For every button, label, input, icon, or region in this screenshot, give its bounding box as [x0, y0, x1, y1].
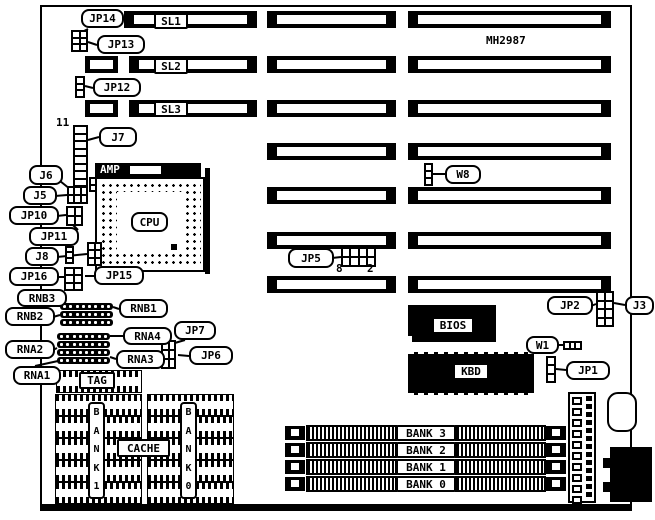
w8-block-pin [426, 179, 431, 184]
jp5-block-pin [343, 249, 349, 256]
jp5-block-pin [343, 258, 349, 265]
j8-block-pin [67, 259, 72, 262]
label-sl3: SL3 [154, 101, 188, 117]
jp1-block [546, 356, 556, 383]
jp16-block-pin [66, 276, 73, 281]
jp2-j3-block-pin [606, 293, 612, 300]
label-jp14: JP14 [81, 9, 124, 28]
jp2-j3-block-pin [606, 319, 612, 326]
label-simm-bank0: BANK 0 [396, 476, 456, 492]
label-j7: J7 [99, 127, 137, 147]
jp1-block-pin [548, 375, 554, 381]
label-sl2: SL2 [154, 58, 188, 74]
jp2-j3-block-pin [598, 319, 604, 326]
label-cpu: CPU [131, 212, 168, 232]
jp10-block [66, 206, 83, 226]
jp13-jp14-block-pin [73, 39, 79, 44]
label-cache-bank0: B A N K 0 [180, 402, 197, 499]
motherboard-diagram: AMP JP14SL1JP13SL2JP12SL3J7J6J5JP10JP11J… [0, 0, 655, 520]
label-rna3: RNA3 [116, 350, 165, 369]
label-w1: W1 [526, 336, 559, 354]
jp5-block-pin [360, 249, 366, 256]
jp1-block-pin [548, 366, 554, 372]
label-jp6: JP6 [189, 346, 233, 365]
j7-header-pin [75, 165, 86, 171]
jp10-block-pin [76, 217, 82, 224]
label-simm-bank2: BANK 2 [396, 442, 456, 458]
j8-block-pin [67, 253, 72, 256]
jp16-block [64, 267, 83, 291]
label-j6: J6 [29, 165, 63, 185]
jp16-block-pin [66, 269, 73, 274]
label-w8: W8 [445, 165, 481, 184]
label-rna4: RNA4 [123, 327, 172, 345]
socket-tab-upper [89, 177, 97, 192]
j7-header-pin [75, 127, 86, 133]
w8-block-pin [426, 165, 431, 170]
label-rnb3: RNB3 [17, 289, 67, 307]
jp16-block-pin [66, 284, 73, 289]
label-simm-bank1: BANK 1 [396, 459, 456, 475]
jp13-jp14-block-pin [81, 45, 87, 50]
jp12-block [75, 76, 85, 98]
j5-j6-block-pin [75, 188, 79, 194]
jp6-jp7-block-pin [170, 360, 175, 367]
jp2-j3-block-pin [606, 302, 612, 309]
socket-tab-lower-pin [89, 244, 94, 249]
jp5-pin-8: 8 [336, 262, 343, 275]
jp10-block-pin [68, 208, 74, 215]
j7-header-pin [75, 150, 86, 156]
j7-header-pin [75, 142, 86, 148]
jp12-block-pin [77, 78, 83, 83]
jp5-block-pin [351, 258, 357, 265]
label-sl1: SL1 [154, 13, 188, 29]
jp2-j3-block-pin [598, 302, 604, 309]
label-jp13: JP13 [97, 35, 145, 54]
jp12-block-pin [77, 85, 83, 90]
label-rnb1: RNB1 [119, 299, 168, 318]
socket-tab-upper-pin [91, 186, 95, 191]
w1-block-pin [571, 343, 575, 348]
socket-tab-lower-pin [96, 244, 101, 249]
jp13-jp14-block-pin [73, 32, 79, 37]
jp10-block-pin [68, 217, 74, 224]
jp2-j3-block-pin [598, 293, 604, 300]
j7-header-pin [75, 172, 86, 178]
jp5-block-pin [360, 258, 366, 265]
w8-block-pin [426, 172, 431, 177]
w1-block-pin [565, 343, 569, 348]
j5-j6-block-pin [69, 196, 73, 202]
j8-block-pin [67, 248, 72, 251]
j5-j6-block [67, 186, 88, 204]
jp6-jp7-block-pin [170, 351, 175, 358]
label-bios: BIOS [432, 317, 474, 334]
label-jp2: JP2 [547, 296, 593, 315]
j8-block [65, 246, 74, 264]
label-jp5: JP5 [288, 248, 334, 268]
jp5-block-pin [351, 249, 357, 256]
jp13-jp14-block [71, 30, 88, 52]
j5-j6-block-pin [69, 188, 73, 194]
j7-header-pin [75, 180, 86, 186]
jp16-block-pin [75, 284, 82, 289]
jp2-j3-block-pin [598, 310, 604, 317]
jp5-block-pin [368, 249, 374, 256]
label-rna1: RNA1 [13, 366, 61, 385]
label-tag: TAG [79, 372, 115, 389]
jp12-block-pin [77, 91, 83, 96]
jp6-jp7-block-pin [170, 342, 175, 349]
label-j5: J5 [23, 186, 57, 205]
jp5-pin-2: 2 [367, 262, 374, 275]
j7-header-pin [75, 157, 86, 163]
jp2-j3-block [596, 291, 614, 327]
socket-tab-upper-pin [91, 179, 95, 184]
j5-j6-block-pin [82, 188, 86, 194]
socket-tab-lower [87, 242, 102, 266]
jp1-block-pin [548, 358, 554, 364]
jp10-block-pin [76, 208, 82, 215]
w1-block-pin [576, 343, 580, 348]
label-jp1: JP1 [566, 361, 610, 380]
socket-tab-lower-pin [89, 251, 94, 256]
j5-j6-block-pin [75, 196, 79, 202]
label-cache-bank1: B A N K 1 [88, 402, 105, 499]
label-jp12: JP12 [93, 78, 141, 97]
label-j3: J3 [625, 296, 654, 315]
label-j8: J8 [25, 247, 59, 266]
label-jp7: JP7 [174, 321, 216, 340]
w8-block [424, 163, 433, 186]
jp16-block-pin [75, 269, 82, 274]
socket-tab-lower-pin [89, 259, 94, 264]
jp13-jp14-block-pin [73, 45, 79, 50]
board-part-number: MH2987 [486, 34, 526, 47]
w1-block [563, 341, 582, 350]
label-jp11: JP11 [29, 227, 79, 246]
j7-header-pin [75, 135, 86, 141]
j7-pin-11: 11 [56, 116, 69, 129]
label-rna2: RNA2 [5, 340, 55, 359]
label-cache: CACHE [117, 439, 170, 457]
label-jp16: JP16 [9, 267, 59, 286]
label-rnb2: RNB2 [5, 307, 55, 326]
socket-tab-lower-pin [96, 251, 101, 256]
j7-header [73, 125, 88, 187]
jp16-block-pin [75, 276, 82, 281]
label-jp15: JP15 [94, 266, 144, 285]
label-jp10: JP10 [9, 206, 59, 225]
label-kbd: KBD [453, 363, 489, 380]
j5-j6-block-pin [82, 196, 86, 202]
socket-tab-lower-pin [96, 259, 101, 264]
label-simm-bank3: BANK 3 [396, 425, 456, 441]
jp13-jp14-block-pin [81, 39, 87, 44]
jp13-jp14-block-pin [81, 32, 87, 37]
jp2-j3-block-pin [606, 310, 612, 317]
